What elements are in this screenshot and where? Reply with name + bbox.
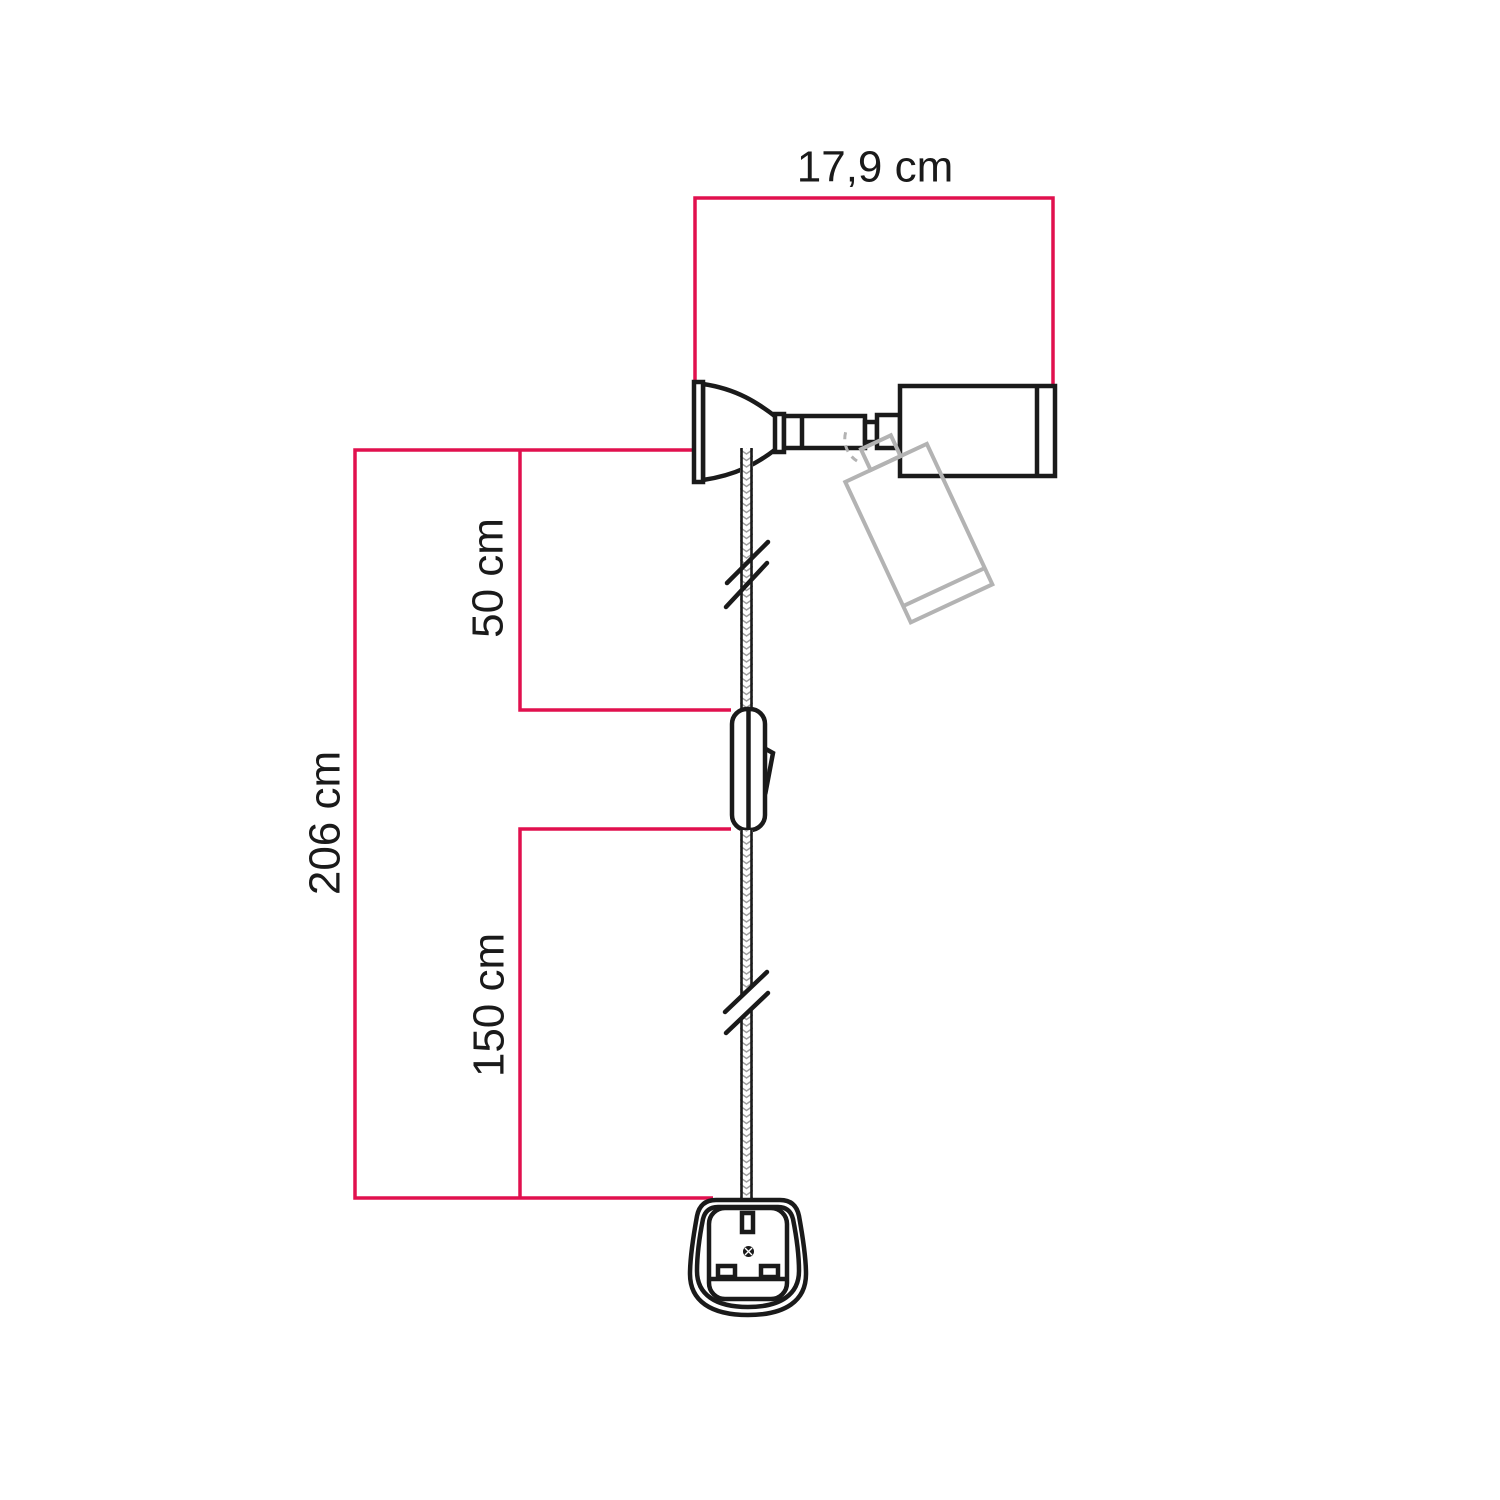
inline-switch — [732, 709, 773, 830]
total-cable-dimension-label: 206 cm — [300, 751, 349, 895]
cable-lower-section — [725, 830, 768, 1200]
dimension-labels: 17,9 cm 50 cm 206 cm 150 cm — [300, 142, 953, 1077]
wall-mount-plate — [694, 382, 703, 482]
lower-cable-dimension-bracket — [520, 829, 731, 1198]
upper-cable-dimension-bracket — [520, 450, 731, 710]
wall-cone-shade — [703, 384, 776, 480]
plug-neutral-pin — [761, 1266, 778, 1277]
width-dimension-bracket — [695, 198, 1053, 385]
total-length-dimension-bracket — [355, 450, 740, 1198]
lamp-head-cylinder — [900, 386, 1055, 476]
lower-cable-dimension-label: 150 cm — [464, 933, 513, 1077]
ghost-endcap-seam — [903, 568, 985, 606]
plug-earth-pin — [742, 1213, 753, 1232]
upper-cable-dimension-label: 50 cm — [463, 518, 512, 638]
uk-plug — [690, 1200, 806, 1315]
width-dimension-label: 17,9 cm — [797, 142, 954, 191]
diagram-svg: 17,9 cm 50 cm 206 cm 150 cm — [0, 0, 1500, 1500]
dimension-lines — [355, 198, 1053, 1198]
plug-live-pin — [718, 1266, 735, 1277]
dimension-diagram: 17,9 cm 50 cm 206 cm 150 cm — [0, 0, 1500, 1500]
arm-cylinder — [784, 416, 865, 448]
cable-upper-section — [726, 448, 768, 710]
